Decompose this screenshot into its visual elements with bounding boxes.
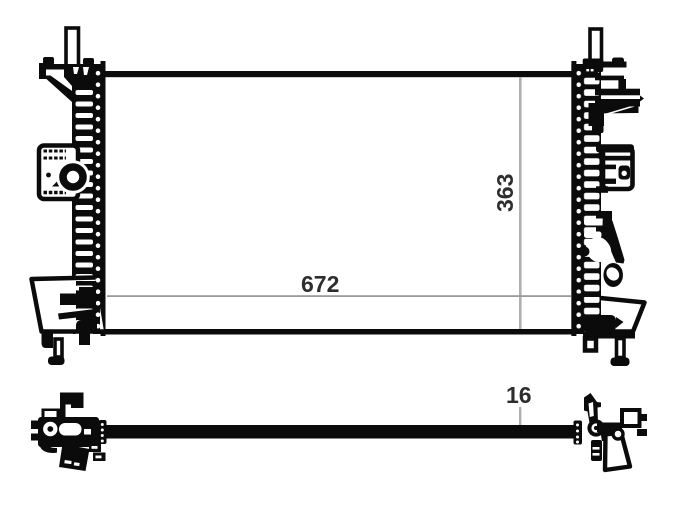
svg-text:16: 16 <box>506 382 532 408</box>
svg-text:363: 363 <box>492 174 518 212</box>
svg-text:672: 672 <box>301 271 339 297</box>
